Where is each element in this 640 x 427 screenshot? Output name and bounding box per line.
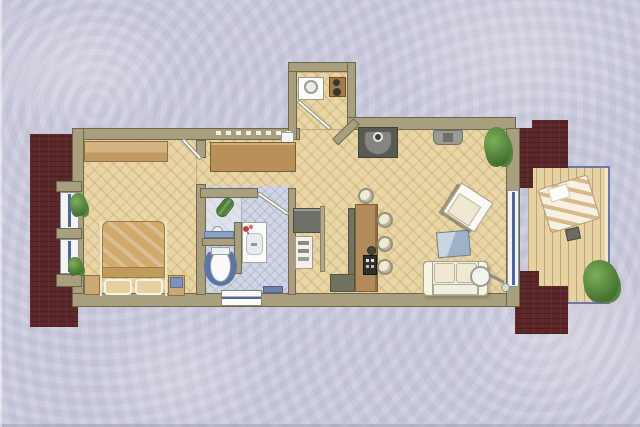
bed-pillow-right	[135, 279, 163, 295]
nightstand-cushion	[170, 277, 183, 288]
floor-lamp-base	[501, 283, 510, 292]
hifi-dots	[366, 259, 369, 262]
balcony-window-door	[507, 190, 519, 287]
window-sill-c	[56, 274, 82, 287]
bar-stool-1	[358, 188, 374, 204]
burner-2	[333, 88, 341, 96]
tv-speaker	[373, 132, 383, 142]
sofa-back	[433, 284, 478, 295]
shoes	[298, 241, 309, 245]
balcony-plant	[583, 260, 619, 302]
shadow-mass-bottom-right-b	[515, 286, 568, 334]
kitchen-counter-table	[210, 142, 296, 172]
burner-1	[333, 79, 340, 86]
bar-stool-2	[377, 212, 393, 228]
bed-pillow-left	[104, 279, 132, 295]
wall-alcove-top	[288, 62, 356, 72]
window-sill-a	[56, 181, 82, 192]
wall-alcove-left	[288, 66, 297, 140]
washing-machine-drum	[304, 80, 318, 94]
bar-stool-4	[377, 259, 393, 275]
entrance-threshold	[221, 290, 262, 306]
entrance-doormat	[263, 286, 283, 293]
vanity-flowers	[243, 226, 249, 232]
bar-counter-return	[330, 274, 355, 292]
toilet-tank	[211, 247, 230, 255]
bar-stool-3	[377, 236, 393, 252]
wall-bathroom-top	[200, 188, 258, 198]
counter-knob	[367, 246, 376, 255]
hifi-on-counter	[363, 255, 377, 275]
bedroom-plant-upper	[70, 193, 87, 216]
bed	[100, 221, 167, 296]
bedroom-plant-lower	[68, 257, 83, 275]
coffee-table	[436, 230, 471, 259]
sofa-cushion-1	[434, 263, 455, 283]
shadow-mass-top-right-b	[518, 128, 533, 188]
hall-unit-side-panel	[320, 206, 325, 272]
shower-mat	[204, 231, 234, 238]
floor-plan-illustration	[0, 0, 640, 427]
bed-fold	[102, 267, 165, 278]
shadow-mass-top-right-a	[532, 120, 568, 168]
hall-wardrobe	[293, 208, 321, 233]
vanity-faucet	[251, 243, 257, 246]
nightstand-left	[84, 275, 100, 295]
floor-lamp-shade	[470, 266, 491, 287]
bed-blanket	[102, 221, 165, 268]
media-console-center	[443, 133, 453, 142]
window-sill-b	[56, 228, 82, 239]
living-room-plant	[484, 127, 511, 166]
bedroom-wardrobe	[84, 141, 168, 162]
sofa-armrest-left	[423, 261, 433, 296]
